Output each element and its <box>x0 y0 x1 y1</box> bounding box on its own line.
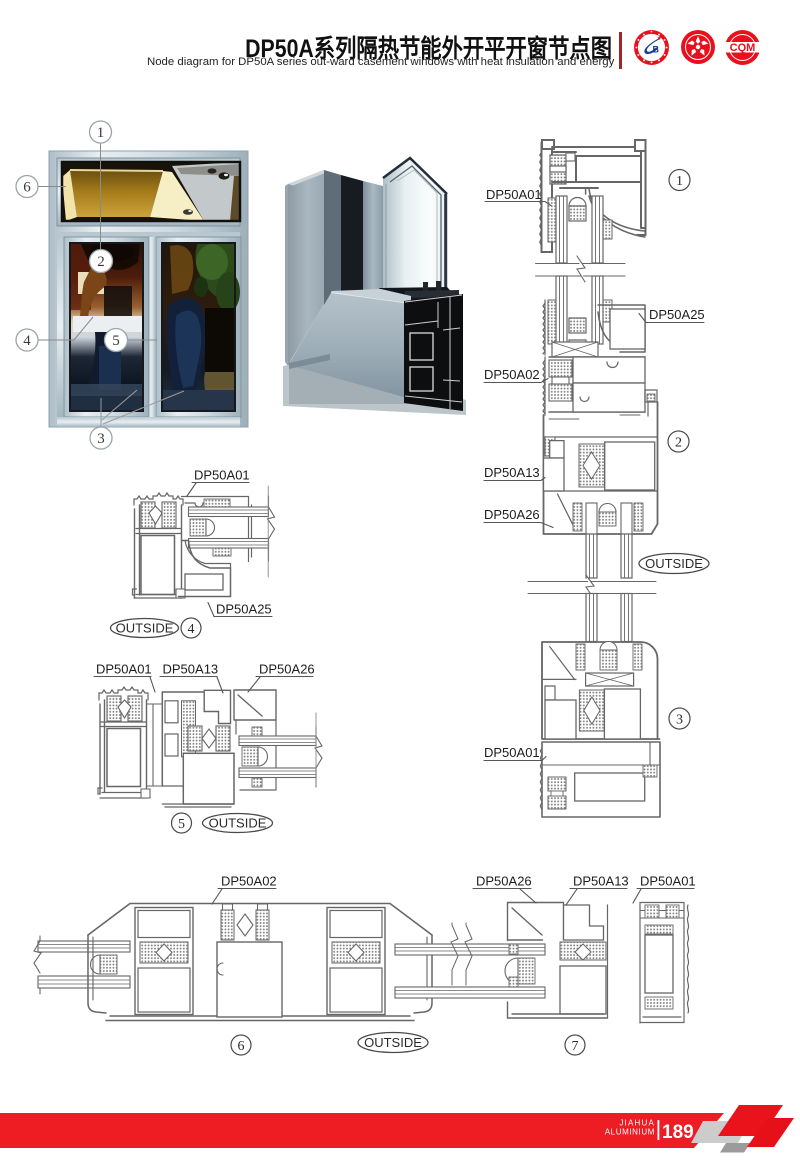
svg-text:4: 4 <box>188 622 195 637</box>
svg-text:6: 6 <box>23 180 31 196</box>
svg-text:CQM: CQM <box>730 42 756 54</box>
svg-text:189: 189 <box>662 1122 694 1143</box>
svg-text:DP50A01: DP50A01 <box>486 187 542 202</box>
svg-text:2: 2 <box>97 254 105 270</box>
svg-text:6: 6 <box>238 1039 245 1054</box>
svg-text:OUTSIDE: OUTSIDE <box>645 556 703 571</box>
svg-text:4: 4 <box>23 333 31 349</box>
svg-text:DP50A25: DP50A25 <box>216 602 272 617</box>
svg-text:DP50A26: DP50A26 <box>259 662 315 677</box>
svg-text:JIAHUA: JIAHUA <box>619 1119 655 1128</box>
svg-text:1: 1 <box>676 174 683 189</box>
svg-text:OUTSIDE: OUTSIDE <box>364 1035 422 1050</box>
svg-text:DP50A26: DP50A26 <box>476 874 532 889</box>
svg-text:B: B <box>653 45 660 55</box>
svg-text:DP50A01: DP50A01 <box>484 745 540 760</box>
svg-text:ALUMINIUM: ALUMINIUM <box>605 1128 655 1137</box>
svg-text:DP50A02: DP50A02 <box>221 874 277 889</box>
svg-text:DP50A13: DP50A13 <box>163 662 219 677</box>
svg-text:3: 3 <box>97 431 105 447</box>
svg-text:OUTSIDE: OUTSIDE <box>116 621 174 636</box>
svg-text:DP50A25: DP50A25 <box>649 307 705 322</box>
svg-text:DP50A01: DP50A01 <box>96 662 152 677</box>
svg-text:DP50A13: DP50A13 <box>573 874 629 889</box>
svg-text:DP50A13: DP50A13 <box>484 465 540 480</box>
svg-text:DP50A01: DP50A01 <box>640 874 696 889</box>
svg-text:5: 5 <box>178 817 185 832</box>
svg-text:OUTSIDE: OUTSIDE <box>209 816 267 831</box>
svg-text:1: 1 <box>97 125 105 141</box>
svg-text:7: 7 <box>572 1039 579 1054</box>
svg-text:5: 5 <box>112 333 120 349</box>
svg-text:2: 2 <box>675 436 682 451</box>
svg-text:3: 3 <box>676 713 683 728</box>
svg-text:DP50A01: DP50A01 <box>194 468 250 483</box>
svg-text:DP50A02: DP50A02 <box>484 367 540 382</box>
svg-text:DP50A26: DP50A26 <box>484 507 540 522</box>
